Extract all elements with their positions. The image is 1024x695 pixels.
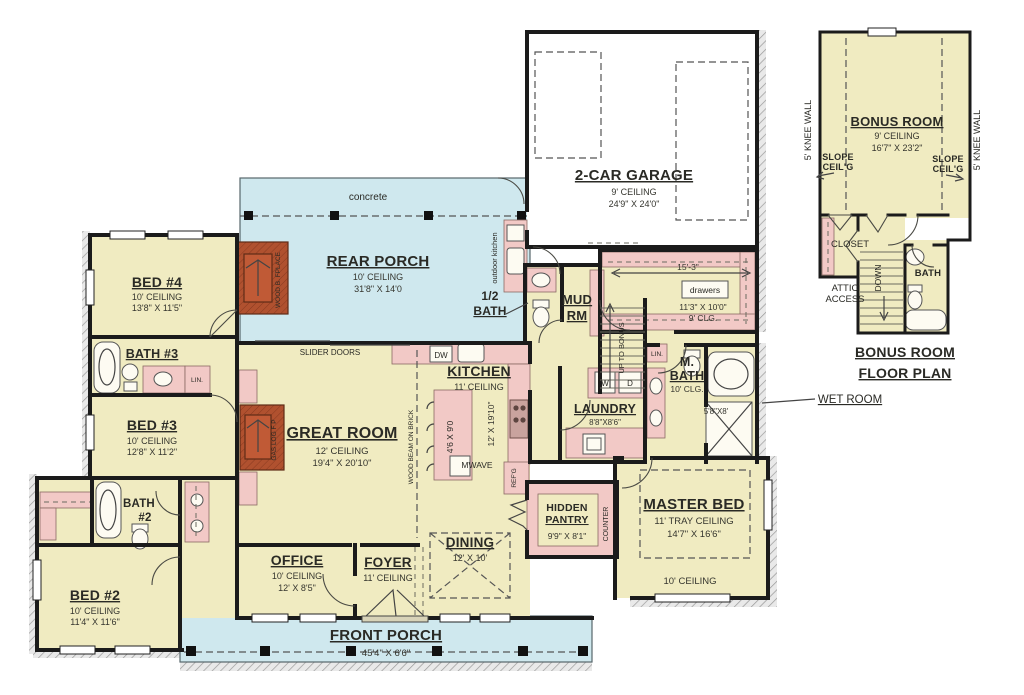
slope-left-1: SLOPE [822, 152, 854, 162]
great-room-dims: 19'4" X 20'10" [313, 458, 372, 469]
master-bath-title-2: BATH [670, 369, 705, 383]
mud-room-title-2: RM [567, 308, 588, 323]
master-bed-ceiling2: 10' CEILING [663, 576, 716, 587]
bonus-plan-title-1: BONUS ROOM [855, 344, 955, 360]
wet-room-callout: WET ROOM [818, 394, 882, 406]
bed2-ceiling: 10' CEILING [70, 606, 120, 616]
wood-fireplace-label: WOOD B. FPLACE [275, 251, 282, 308]
counter-label: COUNTER [603, 507, 610, 542]
bonus-plan-title-2: FLOOR PLAN [859, 365, 952, 381]
attic-access-2: ACCESS [825, 294, 864, 305]
office-ceiling: 10' CEILING [272, 571, 322, 581]
laundry-title: LAUNDRY [574, 402, 637, 416]
slider-doors-label: SLIDER DOORS [300, 348, 360, 357]
stairs-linen: LIN. [651, 351, 663, 358]
kitchen-ceiling: 11' CEILING [454, 382, 504, 392]
fridge-label: REF'G [511, 468, 518, 487]
bonus-room-title: BONUS ROOM [851, 114, 944, 129]
microwave-label: MWAVE [461, 460, 492, 470]
master-bed-dims: 14'7" X 16'6" [667, 529, 721, 540]
knee-wall-right-label: 5' KNEE WALL [972, 110, 982, 170]
bath3-title: BATH #3 [126, 347, 179, 361]
dishwasher-label: DW [434, 351, 448, 360]
bed4-title: BED #4 [132, 274, 182, 290]
floor-plan-page: concrete REAR PORCH 10' CEILING 31'8" X … [0, 0, 1024, 695]
dryer-label: D [627, 379, 633, 388]
bed2-dims: 11'4" X 11'6" [70, 617, 120, 627]
down-label: DOWN [873, 265, 883, 292]
closet-clg: 9' CLG. [689, 313, 718, 323]
outdoor-kitchen-label: outdoor kitchen [490, 232, 499, 283]
master-bath-title-1: M. [680, 355, 694, 369]
rear-porch-dims: 31'8" X 14'0 [354, 284, 402, 294]
bath2-title-1: BATH [123, 498, 155, 510]
kitchen-title: KITCHEN [447, 363, 511, 379]
laundry-dims: 8'8"X8'6" [589, 418, 621, 427]
attic-access-1: ATTIC [832, 283, 859, 294]
dining-title: DINING [446, 535, 494, 550]
bonus-room-ceiling: 9' CEILING [874, 131, 919, 141]
kitchen-dims: 12' X 19'10" [486, 401, 496, 446]
rear-porch-ceiling: 10' CEILING [353, 272, 403, 282]
wood-beam-label: WOOD BEAM ON BRICK [408, 409, 415, 484]
foyer-ceiling: 11' CEILING [363, 573, 413, 583]
garage-dims: 24'9" X 24'0" [609, 199, 660, 209]
bed4-dims: 13'8" X 11'5" [132, 303, 182, 313]
floor-plan-drawing: concrete REAR PORCH 10' CEILING 31'8" X … [0, 0, 1024, 695]
closet-dims: 11'3" X 10'0" [679, 302, 726, 312]
closet-width-dim: 15'-3" [677, 262, 699, 272]
dining-dims: 12' X 10' [453, 553, 488, 563]
slope-left-2: CEIL'G [823, 162, 854, 172]
pantry-title-2: PANTRY [545, 514, 588, 526]
garage-ceiling: 9' CEILING [611, 187, 656, 197]
up-to-bonus-label: UP TO BONUS [617, 322, 626, 373]
mud-room-title-1: MUD [562, 292, 592, 307]
pantry-title-1: HIDDEN [546, 502, 587, 514]
concrete-label: concrete [349, 192, 388, 203]
island-dims: 4'6 X 9'0 [445, 420, 455, 453]
office-dims: 12' X 8'5" [278, 583, 316, 593]
half-bath-title-1: 1/2 [481, 289, 498, 303]
wet-room-dims: 5'8"X8' [704, 407, 729, 416]
foyer-title: FOYER [364, 555, 412, 570]
bonus-room-dims: 16'7" X 23'2" [872, 143, 923, 153]
bath3-linen: LIN. [191, 377, 203, 384]
front-porch-dims: 45'4" X 6'6" [362, 648, 410, 659]
half-bath-title-2: BATH [473, 304, 506, 318]
front-porch-title: FRONT PORCH [330, 627, 442, 644]
gas-fireplace-label: GAS LOG F P [271, 419, 278, 460]
master-bath-clg: 10' CLG. [670, 384, 703, 394]
office-title: OFFICE [271, 552, 324, 568]
bonus-bath-label: BATH [915, 268, 941, 279]
master-bed-title: MASTER BED [643, 496, 744, 513]
knee-wall-left-label: 5' KNEE WALL [803, 100, 813, 160]
great-room-title: GREAT ROOM [286, 425, 397, 442]
great-room-ceiling: 12' CEILING [315, 446, 368, 457]
bonus-closet-label: CLOSET [831, 239, 869, 250]
bed3-ceiling: 10' CEILING [127, 436, 177, 446]
pantry-dims: 9'9" X 8'1" [548, 531, 587, 541]
wet-room-leader [762, 399, 815, 403]
garage-title: 2-CAR GARAGE [575, 167, 693, 184]
garage-floor [527, 32, 757, 247]
bed2-title: BED #2 [70, 587, 120, 603]
bed4-ceiling: 10' CEILING [132, 292, 182, 302]
drawers-label: drawers [690, 285, 720, 295]
bed3-title: BED #3 [127, 417, 177, 433]
slope-right-2: CEIL'G [933, 164, 964, 174]
washer-label: W [601, 379, 609, 388]
slope-right-1: SLOPE [932, 154, 964, 164]
rear-porch-title: REAR PORCH [327, 253, 430, 270]
bed3-dims: 12'8" X 11'2" [127, 447, 177, 457]
master-bed-ceiling: 11' TRAY CEILING [654, 516, 733, 527]
bath2-title-2: #2 [138, 512, 151, 524]
